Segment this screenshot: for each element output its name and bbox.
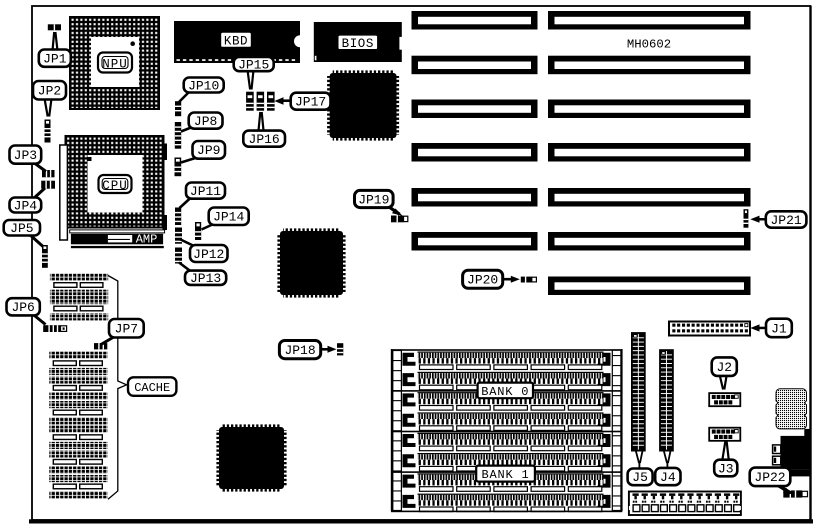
- svg-text:JP20: JP20: [467, 273, 498, 288]
- svg-text:JP4: JP4: [14, 198, 38, 213]
- svg-text:JP19: JP19: [358, 192, 389, 207]
- svg-text:CACHE: CACHE: [134, 381, 170, 395]
- svg-text:KBD: KBD: [224, 34, 248, 48]
- svg-text:JP16: JP16: [249, 132, 280, 147]
- svg-text:JP8: JP8: [194, 114, 217, 129]
- svg-text:JP9: JP9: [197, 143, 220, 158]
- svg-text:J2: J2: [716, 360, 732, 375]
- svg-text:JP15: JP15: [238, 57, 269, 72]
- svg-text:AMP: AMP: [136, 232, 158, 246]
- svg-text:BIOS: BIOS: [342, 37, 374, 51]
- svg-text:CPU: CPU: [102, 179, 128, 193]
- svg-text:J4: J4: [660, 470, 676, 485]
- svg-text:JP5: JP5: [10, 221, 33, 236]
- svg-text:NPU: NPU: [102, 57, 128, 71]
- svg-text:JP22: JP22: [754, 470, 785, 485]
- svg-text:JP2: JP2: [38, 84, 61, 99]
- svg-text:JP14: JP14: [213, 210, 244, 225]
- svg-text:JP21: JP21: [770, 213, 801, 228]
- svg-text:J3: J3: [718, 461, 734, 476]
- svg-text:JP10: JP10: [188, 78, 219, 93]
- svg-text:MH0602: MH0602: [627, 38, 671, 52]
- svg-text:JP13: JP13: [190, 271, 221, 286]
- svg-text:JP6: JP6: [11, 300, 34, 315]
- svg-text:J5: J5: [632, 470, 648, 485]
- svg-text:JP18: JP18: [284, 343, 315, 358]
- svg-text:JP12: JP12: [193, 247, 224, 262]
- svg-text:JP17: JP17: [295, 95, 326, 110]
- svg-text:BANK 0: BANK 0: [481, 385, 529, 399]
- svg-text:JP1: JP1: [43, 51, 67, 66]
- svg-text:JP7: JP7: [115, 322, 138, 337]
- svg-text:J1: J1: [771, 321, 787, 336]
- svg-text:JP3: JP3: [14, 148, 37, 163]
- svg-text:BANK 1: BANK 1: [481, 468, 529, 482]
- svg-text:JP11: JP11: [190, 184, 221, 199]
